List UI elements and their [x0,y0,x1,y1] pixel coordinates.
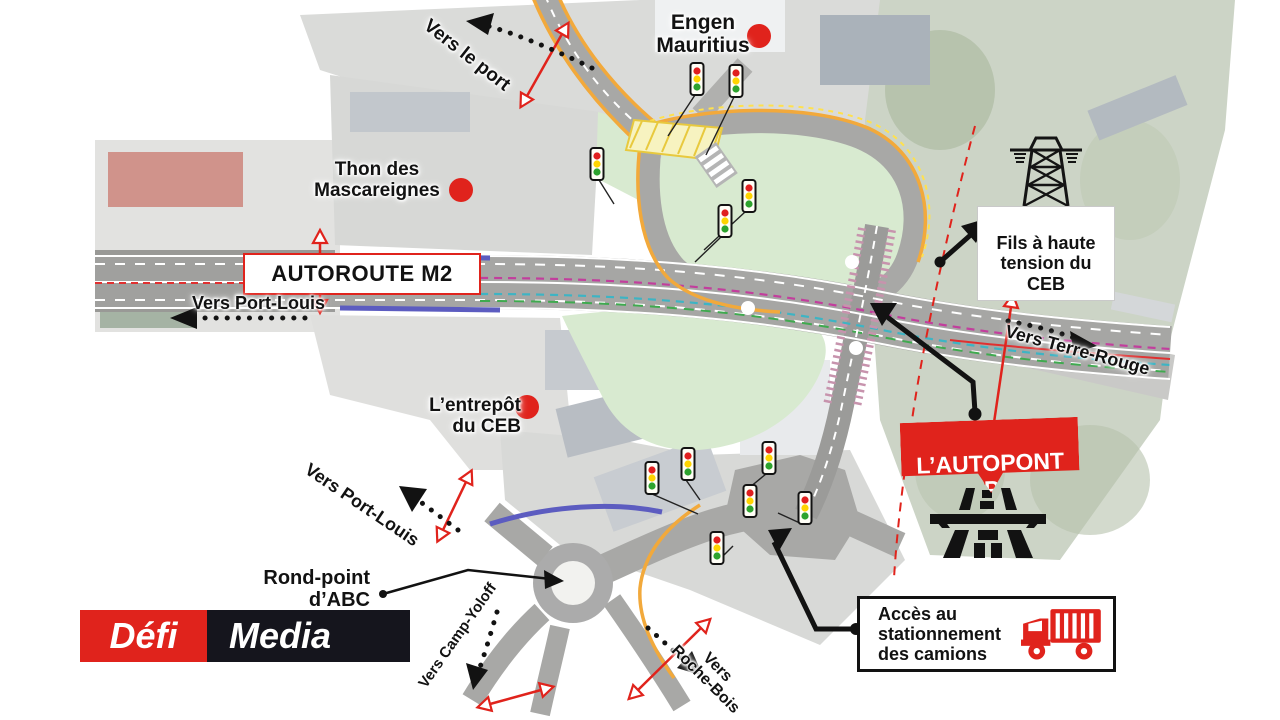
traffic-light-icon [744,485,757,517]
traffic-light-icon [743,180,756,212]
traffic-light-icon [730,65,743,97]
defi-media-logo: Défi Media [80,610,410,662]
label-vers-port-louis-upper: Vers Port-Louis [192,294,325,313]
infographic-canvas: Engen Mauritius Vers le port Thon des Ma… [0,0,1280,720]
label-autoroute-m2: AUTOROUTE M2 [243,253,481,295]
label-entrepot-ceb: L’entrepôt du CEB [415,396,521,437]
label-rond-point-abc: Rond-point d’ABC [250,568,370,611]
traffic-light-icon [646,462,659,494]
acces-stationnement-text: Accès au stationnement des camions [860,604,1021,664]
traffic-light-icon [763,442,776,474]
traffic-light-icon [691,63,704,95]
label-engen-mauritius: Engen Mauritius [648,12,758,57]
traffic-light-icon [682,448,695,480]
traffic-light-icon [799,492,812,524]
autoroute-m2-text: AUTOROUTE M2 [271,261,453,287]
traffic-light-icon [591,148,604,180]
traffic-light-icon [719,205,732,237]
acces-stationnement-box: Accès au stationnement des camions [857,596,1116,672]
location-dot-thon [449,178,473,202]
label-thon-des-mascareignes: Thon des Mascareignes [308,160,446,201]
logo-defi: Défi [80,610,207,662]
fils-haute-tension-text: Fils à haute tension du CEB [996,233,1095,294]
arrowhead-vers-port-louis-lower [399,486,427,512]
logo-media: Media [207,610,410,662]
label-fils-haute-tension: Fils à haute tension du CEB [977,206,1115,301]
traffic-light-icon [711,532,724,564]
truck-icon [1021,607,1105,662]
